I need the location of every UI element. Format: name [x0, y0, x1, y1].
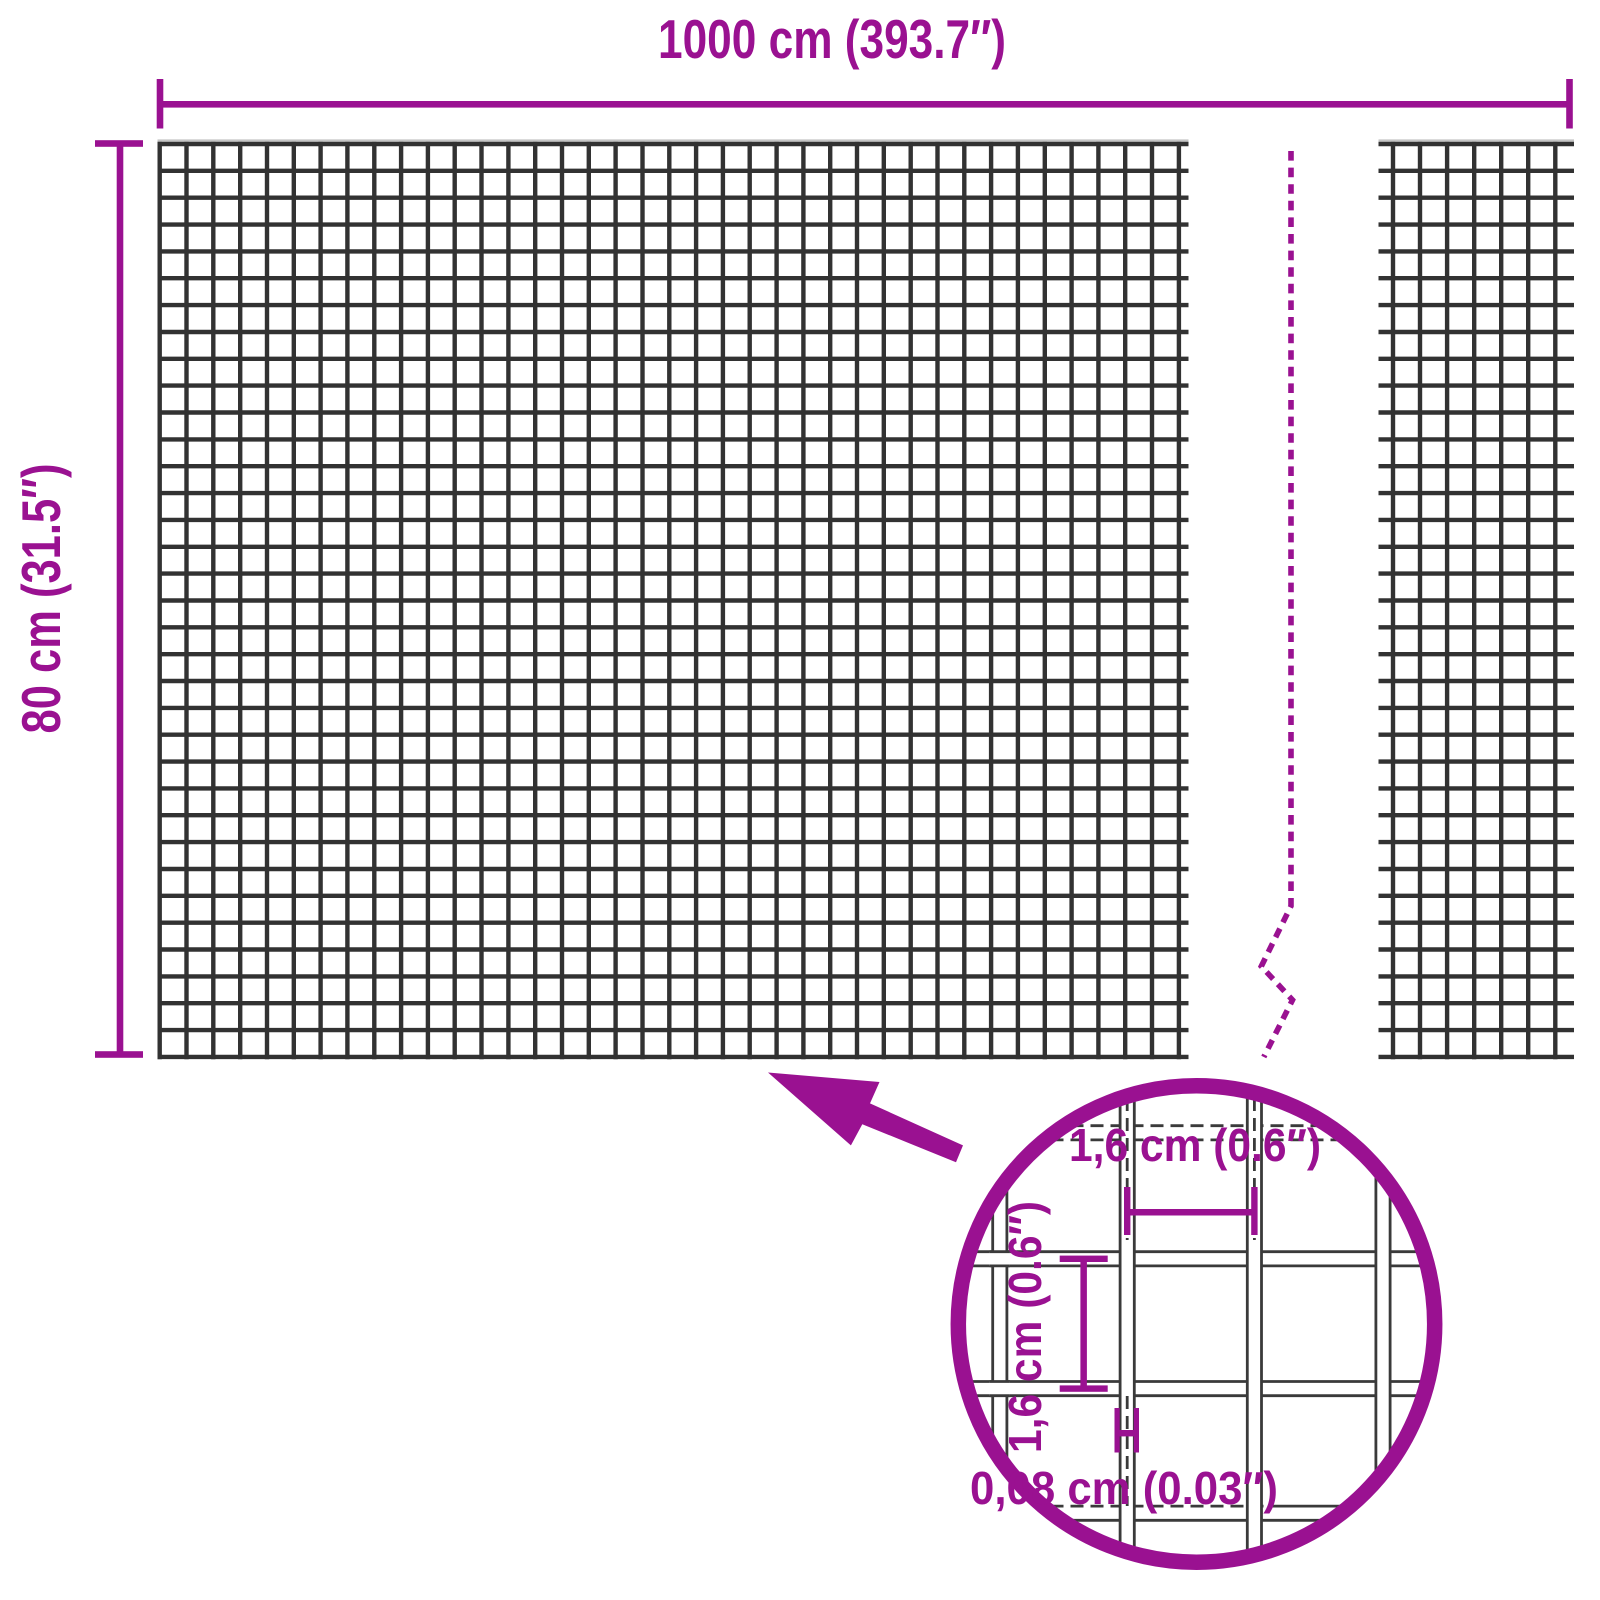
svg-text:1,6 cm (0.6″): 1,6 cm (0.6″)	[999, 1201, 1051, 1453]
svg-text:1,6 cm (0.6″): 1,6 cm (0.6″)	[1069, 1119, 1321, 1171]
svg-text:0,08 cm (0.03″): 0,08 cm (0.03″)	[970, 1462, 1278, 1514]
svg-text:1000 cm (393.7″): 1000 cm (393.7″)	[658, 9, 1006, 70]
svg-text:80 cm (31.5″): 80 cm (31.5″)	[11, 464, 72, 734]
